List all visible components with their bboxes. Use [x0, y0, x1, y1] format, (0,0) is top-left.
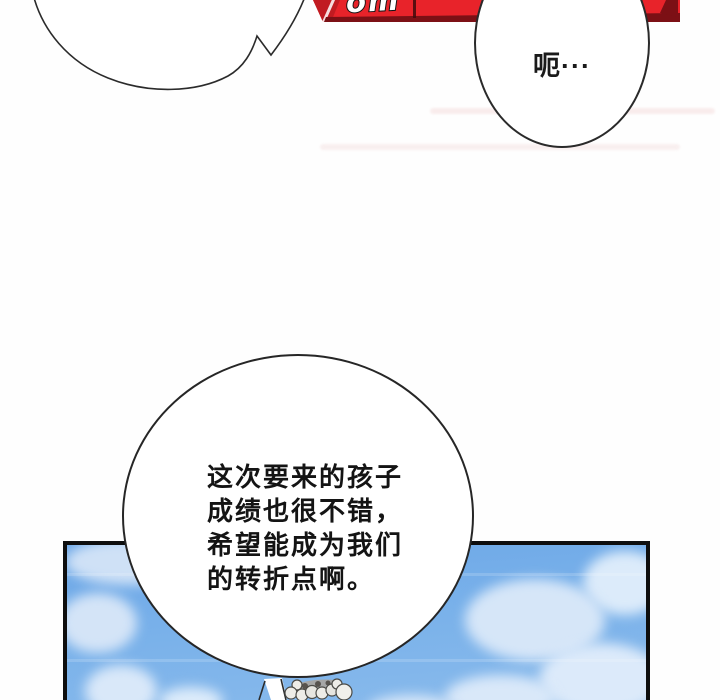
speech-line-1: 这次要来的孩子 [207, 460, 403, 494]
speech-line-3: 希望能成为我们 [207, 528, 403, 562]
speech-line-4: 的转折点啊。 [207, 562, 403, 596]
speech-text-main: 这次要来的孩子 成绩也很不错， 希望能成为我们 的转折点啊。 [207, 460, 403, 596]
faint-streak [320, 144, 680, 150]
banner-sign-text: om [341, 0, 437, 19]
cloud [367, 695, 457, 700]
cloud [63, 593, 137, 653]
cloud [159, 687, 223, 700]
cloud [85, 665, 157, 700]
comic-page: om 呃··· 这次要来的孩子 成绩也很不错， 希望能成为我们 的转折点啊。 [0, 0, 720, 700]
speech-text-uh: 呃··· [476, 44, 648, 83]
speech-line-2: 成绩也很不错， [207, 494, 403, 528]
banner-sign-letters: om [345, 0, 401, 19]
speech-bubble-top-right: 呃··· [474, 0, 650, 148]
speech-bubble-top-left-outline [33, 0, 306, 89]
speech-bubble-main: 这次要来的孩子 成绩也很不错， 希望能成为我们 的转折点啊。 [122, 354, 474, 678]
